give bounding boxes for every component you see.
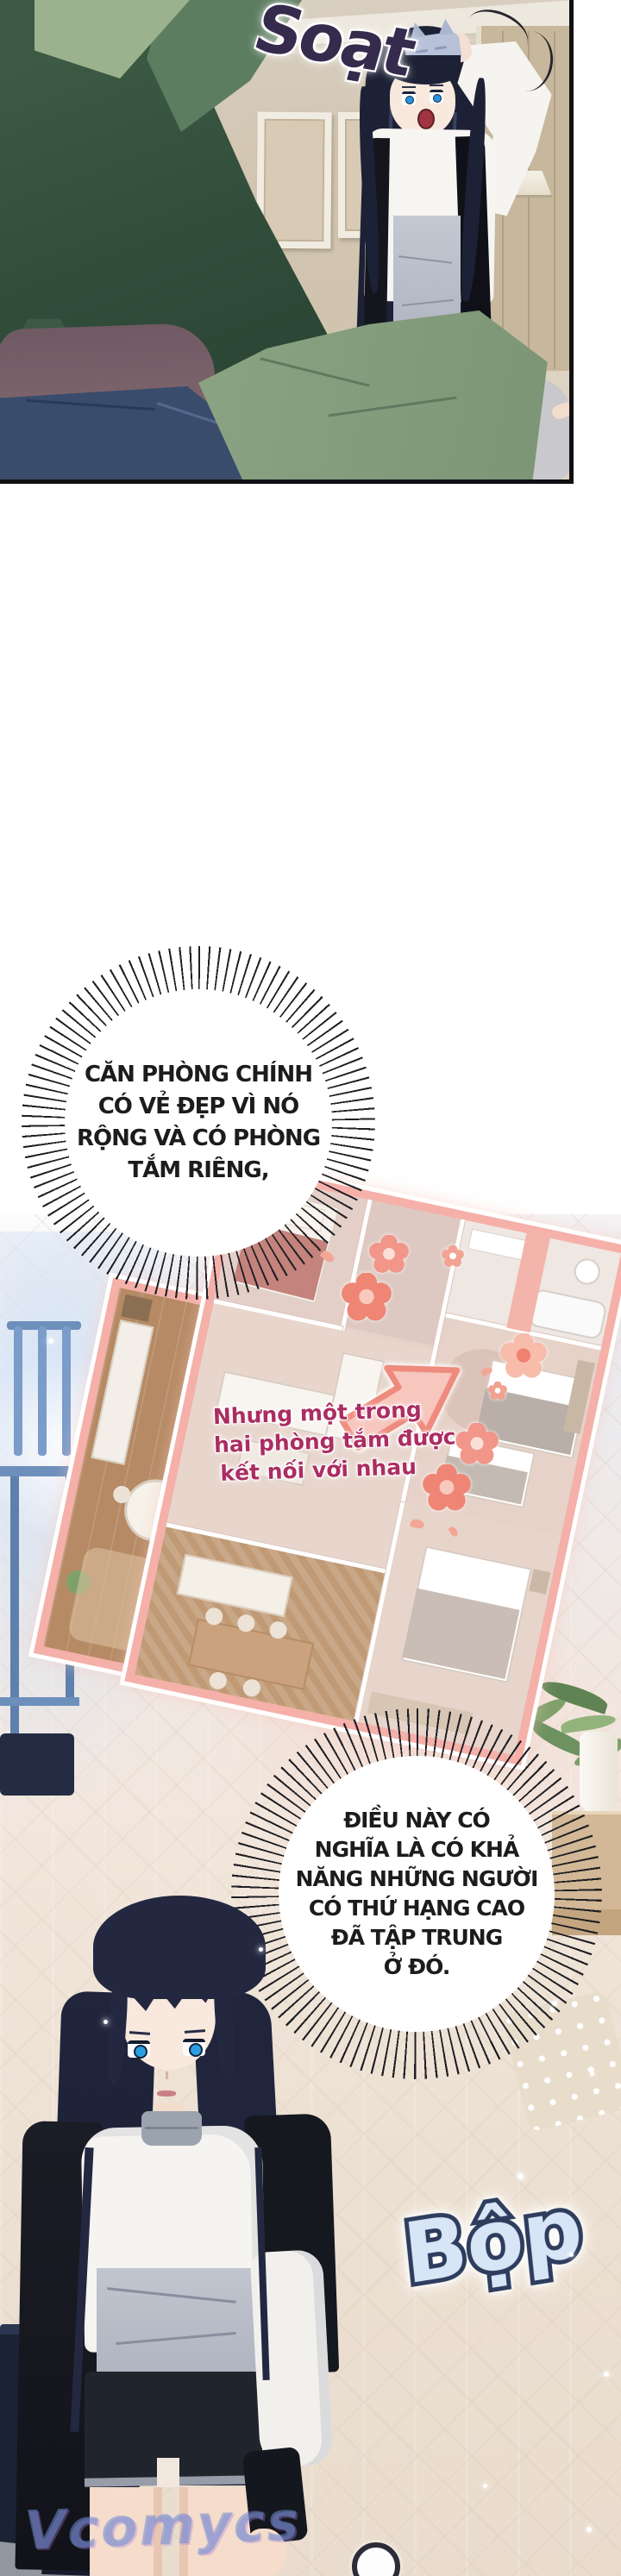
flower-icon — [442, 1245, 464, 1268]
bubble-line: ĐIỀU NÀY CÓ — [343, 1806, 490, 1835]
mouth — [157, 2090, 176, 2097]
collar-fold — [145, 2127, 198, 2129]
bubble-core: CĂN PHÒNG CHÍNH CÓ VẺ ĐẸP VÌ NÓ RỘNG VÀ … — [65, 989, 332, 1257]
kitchen-counter — [91, 1319, 154, 1465]
iris — [433, 94, 442, 103]
sparkle — [483, 2484, 487, 2488]
woman-bottom — [0, 1889, 371, 2576]
sparkle — [552, 2001, 557, 2006]
thought-bubble-1: CĂN PHÒNG CHÍNH CÓ VẺ ĐẸP VÌ NÓ RỘNG VÀ … — [22, 946, 375, 1300]
mask-ear — [437, 18, 454, 34]
sparkle — [590, 2071, 594, 2076]
light-gap — [157, 2458, 179, 2487]
eye-left — [128, 2040, 150, 2058]
iris — [134, 2045, 147, 2059]
sparkle — [259, 1947, 263, 1952]
webtoon-page: Nhưng một trong hai phòng tắm được kết n… — [0, 0, 621, 2576]
bubble-line: Ở ĐÓ. — [384, 1952, 450, 1982]
nose — [166, 2071, 168, 2079]
toilet — [572, 1257, 603, 1288]
bubble-line: TẮM RIÊNG, — [128, 1155, 268, 1187]
chair-slat — [14, 1326, 22, 1456]
sparkle — [586, 2527, 592, 2532]
open-mouth — [417, 109, 435, 129]
sparkle — [569, 2253, 574, 2257]
sparkle — [48, 1338, 53, 1344]
plan-note: Nhưng một trong hai phòng tắm được kết n… — [212, 1395, 422, 1488]
eye-left — [402, 91, 416, 105]
island — [177, 1554, 293, 1618]
bubble-line: CĂN PHÒNG CHÍNH — [85, 1059, 312, 1091]
bubble-line: NGHĨA LÀ CÓ KHẢ — [315, 1835, 519, 1865]
flower-icon — [488, 1382, 507, 1401]
watermark: Vcomycs — [23, 2489, 301, 2561]
bubble-line: CÓ VẺ ĐẸP VÌ NÓ — [98, 1091, 299, 1123]
flower-icon — [423, 1464, 471, 1513]
top-panel: Soạt — [0, 0, 574, 484]
eye-right — [183, 2039, 205, 2056]
desk-shelf — [0, 1697, 79, 1706]
eyebrow — [402, 86, 416, 88]
flower-icon — [455, 1423, 499, 1466]
flower-icon — [500, 1333, 547, 1380]
eyebrow — [430, 85, 443, 86]
bubble-line: RỘNG VÀ CÓ PHÒNG — [77, 1123, 320, 1155]
sparkle — [604, 2372, 609, 2377]
nightstand — [529, 1569, 550, 1595]
eye-right — [430, 90, 443, 103]
iris — [405, 96, 414, 104]
sparkle — [103, 2020, 108, 2024]
chair-seat — [0, 1733, 74, 1796]
sparkle — [517, 2173, 524, 2179]
iris — [189, 2043, 203, 2057]
